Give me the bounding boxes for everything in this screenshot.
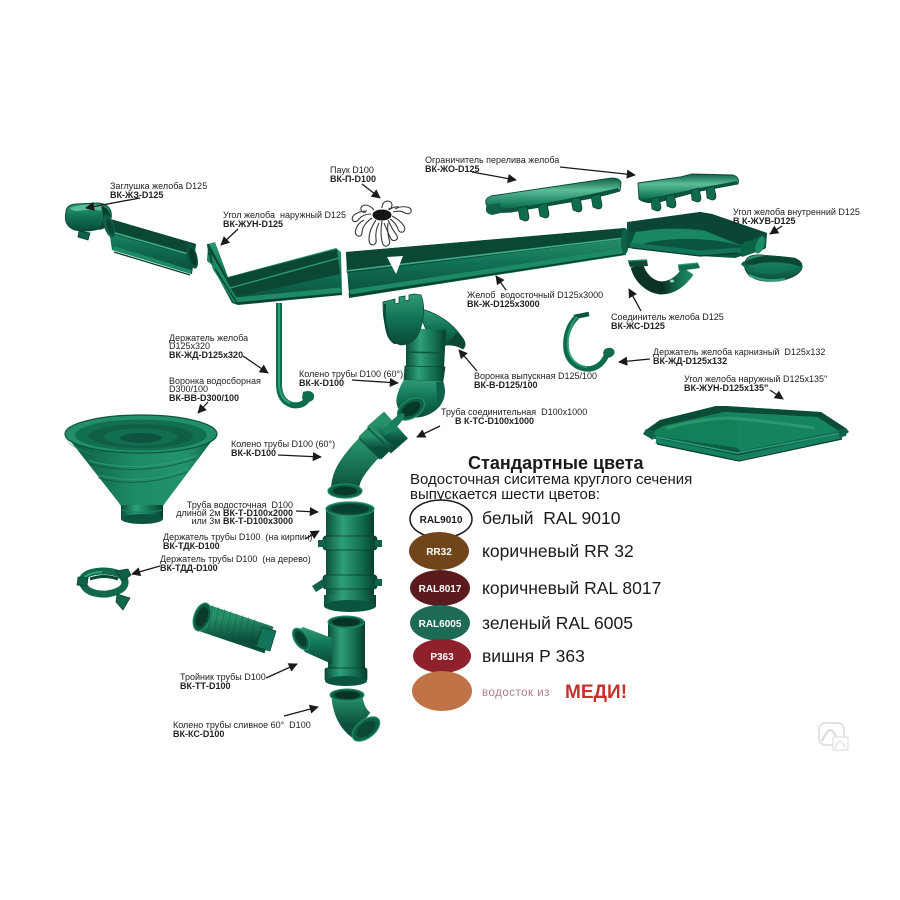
svg-text:ВК-В-D125/100: ВК-В-D125/100 xyxy=(474,380,538,390)
svg-text:коричневый RR 32: коричневый RR 32 xyxy=(482,541,634,561)
svg-text:зеленый RAL 6005: зеленый RAL 6005 xyxy=(482,613,633,633)
svg-text:ВК-ЖЗ-D125: ВК-ЖЗ-D125 xyxy=(110,190,163,200)
svg-text:В К-ТС-D100x1000: В К-ТС-D100x1000 xyxy=(455,416,534,426)
svg-text:ВК-К-D100: ВК-К-D100 xyxy=(231,448,276,458)
svg-text:ВК-П-D100: ВК-П-D100 xyxy=(330,174,376,184)
svg-text:ВК-ТТ-D100: ВК-ТТ-D100 xyxy=(180,681,231,691)
svg-text:ВК-ЖС-D125: ВК-ЖС-D125 xyxy=(611,321,665,331)
svg-text:RAL8017: RAL8017 xyxy=(419,584,462,595)
svg-text:МЕДИ!: МЕДИ! xyxy=(565,682,627,703)
svg-text:Р363: Р363 xyxy=(430,652,454,663)
svg-text:ВК-К-D100: ВК-К-D100 xyxy=(299,378,344,388)
svg-text:ВК-ЖО-D125: ВК-ЖО-D125 xyxy=(425,164,480,174)
svg-text:водосток из: водосток из xyxy=(482,687,550,699)
svg-text:ВК-ВВ-D300/100: ВК-ВВ-D300/100 xyxy=(169,393,239,403)
svg-text:ВК-ЖУН-D125x135": ВК-ЖУН-D125x135" xyxy=(684,383,768,393)
svg-text:Стандартные цвета: Стандартные цвета xyxy=(468,453,644,473)
svg-text:ВК-ТДК-D100: ВК-ТДК-D100 xyxy=(163,541,220,551)
svg-text:ВК-ЖД-D125x320: ВК-ЖД-D125x320 xyxy=(169,350,243,360)
svg-text:коричневый RAL 8017: коричневый RAL 8017 xyxy=(482,578,661,598)
svg-text:ВК-ТДД-D100: ВК-ТДД-D100 xyxy=(160,563,218,573)
svg-text:ВК-ЖУН-D125: ВК-ЖУН-D125 xyxy=(223,219,283,229)
svg-text:ВК-КС-D100: ВК-КС-D100 xyxy=(173,729,224,739)
svg-text:RAL9010: RAL9010 xyxy=(420,515,463,526)
svg-text:белый RAL 9010: белый RAL 9010 xyxy=(482,508,621,528)
svg-text:В К-ЖУВ-D125: В К-ЖУВ-D125 xyxy=(733,216,795,226)
svg-text:ВК-Ж-D125x3000: ВК-Ж-D125x3000 xyxy=(467,299,540,309)
svg-text:вишня Р 363: вишня Р 363 xyxy=(482,646,585,666)
svg-text:RAL6005: RAL6005 xyxy=(419,619,462,630)
svg-text:ВК-ЖД-D125x132: ВК-ЖД-D125x132 xyxy=(653,356,727,366)
svg-text:или 3м ВК-Т-D100x3000: или 3м ВК-Т-D100x3000 xyxy=(191,516,293,526)
svg-text:RR32: RR32 xyxy=(426,547,452,558)
